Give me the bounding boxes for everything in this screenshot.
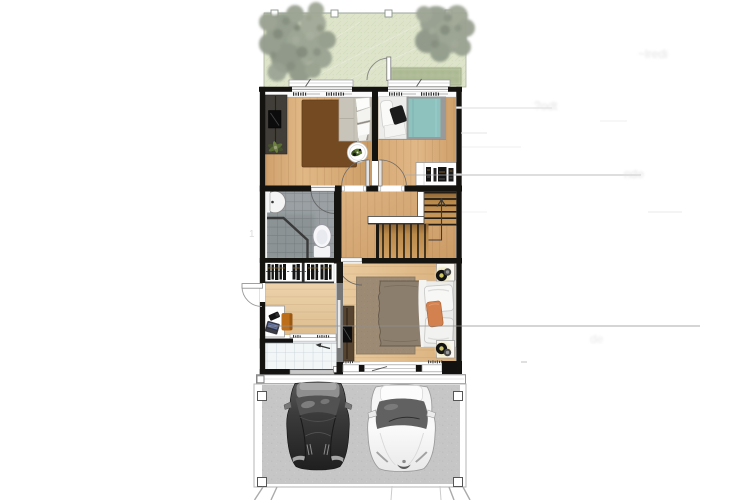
- svg-text:1: 1: [249, 229, 255, 240]
- svg-text:de: de: [590, 332, 604, 346]
- svg-text:~lredi: ~lredi: [638, 47, 668, 61]
- svg-text:nde: nde: [624, 167, 644, 181]
- svg-text:?odt: ?odt: [534, 99, 558, 113]
